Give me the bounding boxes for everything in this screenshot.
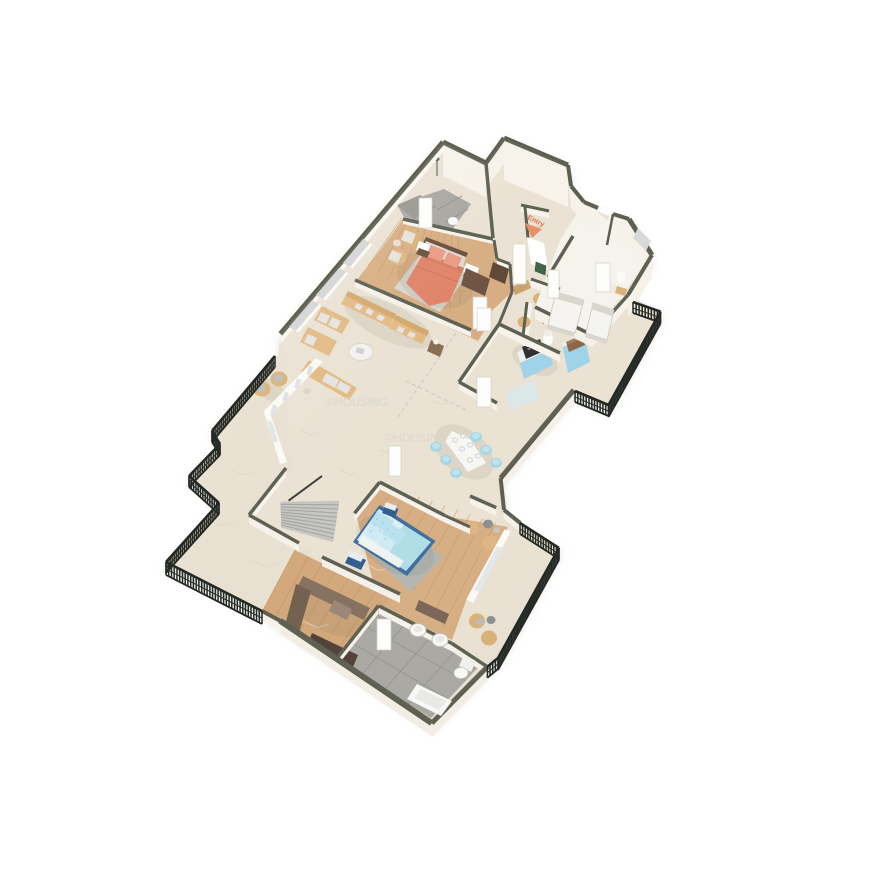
svg-text:©HOUSING: ©HOUSING <box>326 397 388 409</box>
svg-text:©HOUSING: ©HOUSING <box>385 433 447 445</box>
